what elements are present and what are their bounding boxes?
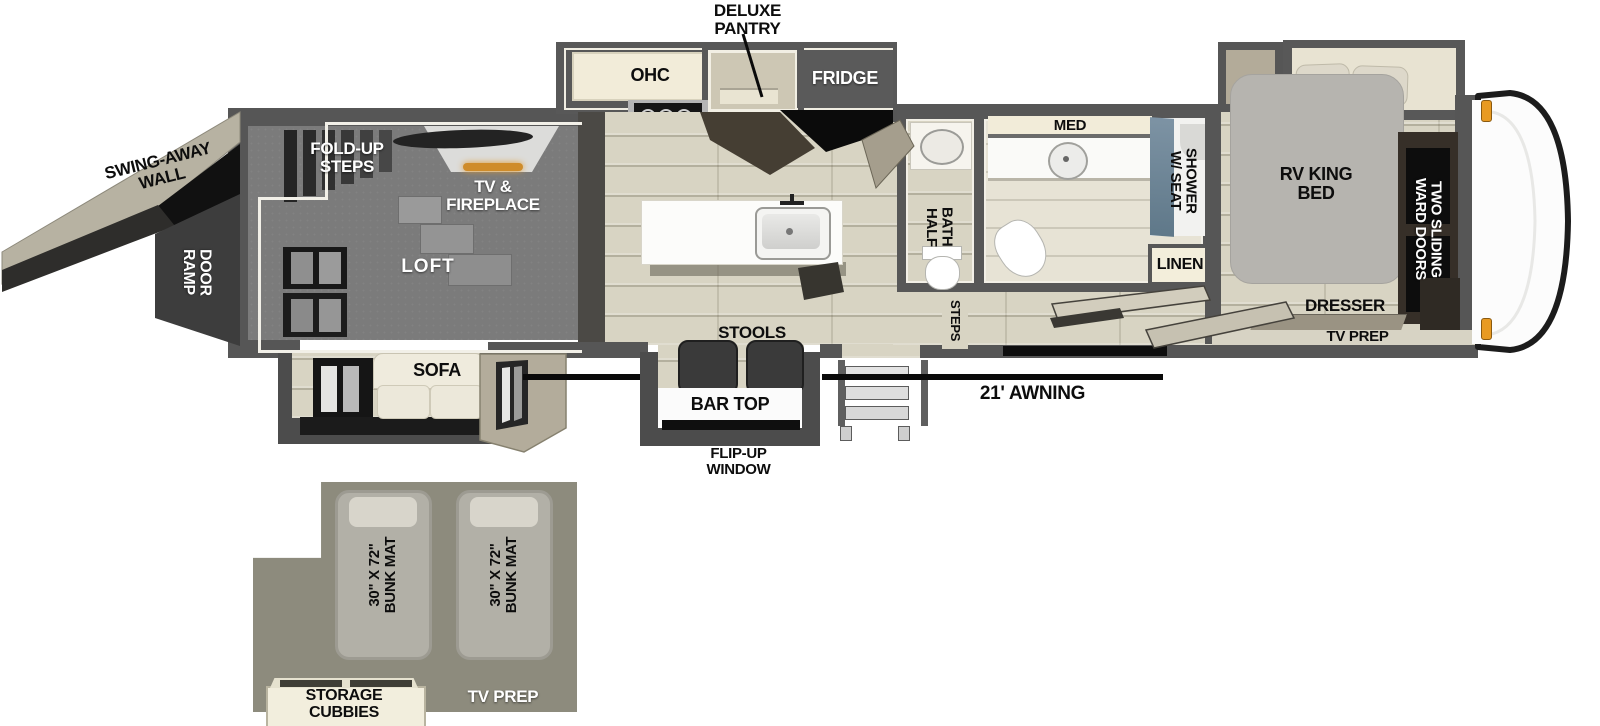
fridge-label: FRIDGE: [797, 64, 893, 92]
shower-w-seat-label: SHOWER W/ SEAT: [1158, 130, 1208, 232]
steps-label: STEPS: [942, 293, 968, 349]
entry-door-pane: [514, 366, 522, 421]
loft-outline-notch: [258, 197, 328, 200]
awning-line-right: [822, 374, 1163, 380]
deluxe-pantry-label: DELUXE PANTRY: [690, 0, 805, 40]
fold-up-steps-label: FOLD-UP STEPS: [292, 138, 402, 178]
linen-label: LINEN: [1150, 252, 1210, 278]
loft-label: LOFT: [388, 254, 468, 280]
med-label: MED: [1040, 117, 1100, 134]
entry-cabinet: [798, 262, 844, 300]
two-sliding-ward-doors-label: TWO SLIDING WARD DOORS: [1400, 140, 1456, 318]
front-cap: [1478, 93, 1568, 350]
awning-label: 21' AWNING: [965, 382, 1100, 406]
tv-prep-bunk-label: TV PREP: [458, 686, 548, 708]
flip-up-window-opening: [662, 420, 800, 430]
bunk-mat-label: 30" X 72" BUNK MAT: [361, 515, 405, 635]
flip-up-window-label: FLIP-UP WINDOW: [686, 444, 791, 480]
vector-overlay: [0, 0, 1600, 726]
stools-label: STOOLS: [708, 322, 796, 344]
entry-door-pane: [502, 367, 510, 423]
pantry-leader-line: [743, 34, 762, 97]
ohc-label: OHC: [600, 60, 700, 90]
loft-outline-left-lower: [258, 197, 261, 353]
dresser-label: DRESSER: [1290, 296, 1400, 316]
half-bath-label: HALF BATH: [916, 180, 962, 274]
rv-king-bed-label: RV KING BED: [1260, 162, 1372, 206]
storage-cubbies-label: STORAGE CUBBIES: [270, 688, 418, 722]
marker-light: [1481, 318, 1492, 340]
storage-cubby-slot: [350, 680, 412, 687]
bedroom-step-board: [1146, 302, 1294, 348]
awning-line-left: [523, 374, 640, 380]
marker-light: [1481, 100, 1492, 122]
loft-outline-bottom: [258, 350, 582, 353]
loft-outline-top: [325, 122, 582, 125]
tv-fireplace-label: TV & FIREPLACE: [428, 176, 558, 216]
tv-prep-bedroom-label: TV PREP: [1310, 328, 1405, 346]
storage-cubby-slot: [280, 680, 342, 687]
bunk-mat-label: 30" X 72" BUNK MAT: [482, 515, 526, 635]
ramp-door-label: RAMP DOOR: [170, 228, 222, 316]
floorplan-canvas: DELUXE PANTRY OHC FRIDGE SWING-AWAY WALL…: [0, 0, 1600, 726]
sofa-label: SOFA: [402, 358, 472, 382]
bar-top-label: BAR TOP: [660, 392, 800, 416]
entry-door-window: [496, 360, 528, 430]
front-cap-left-mask: [1472, 100, 1481, 344]
